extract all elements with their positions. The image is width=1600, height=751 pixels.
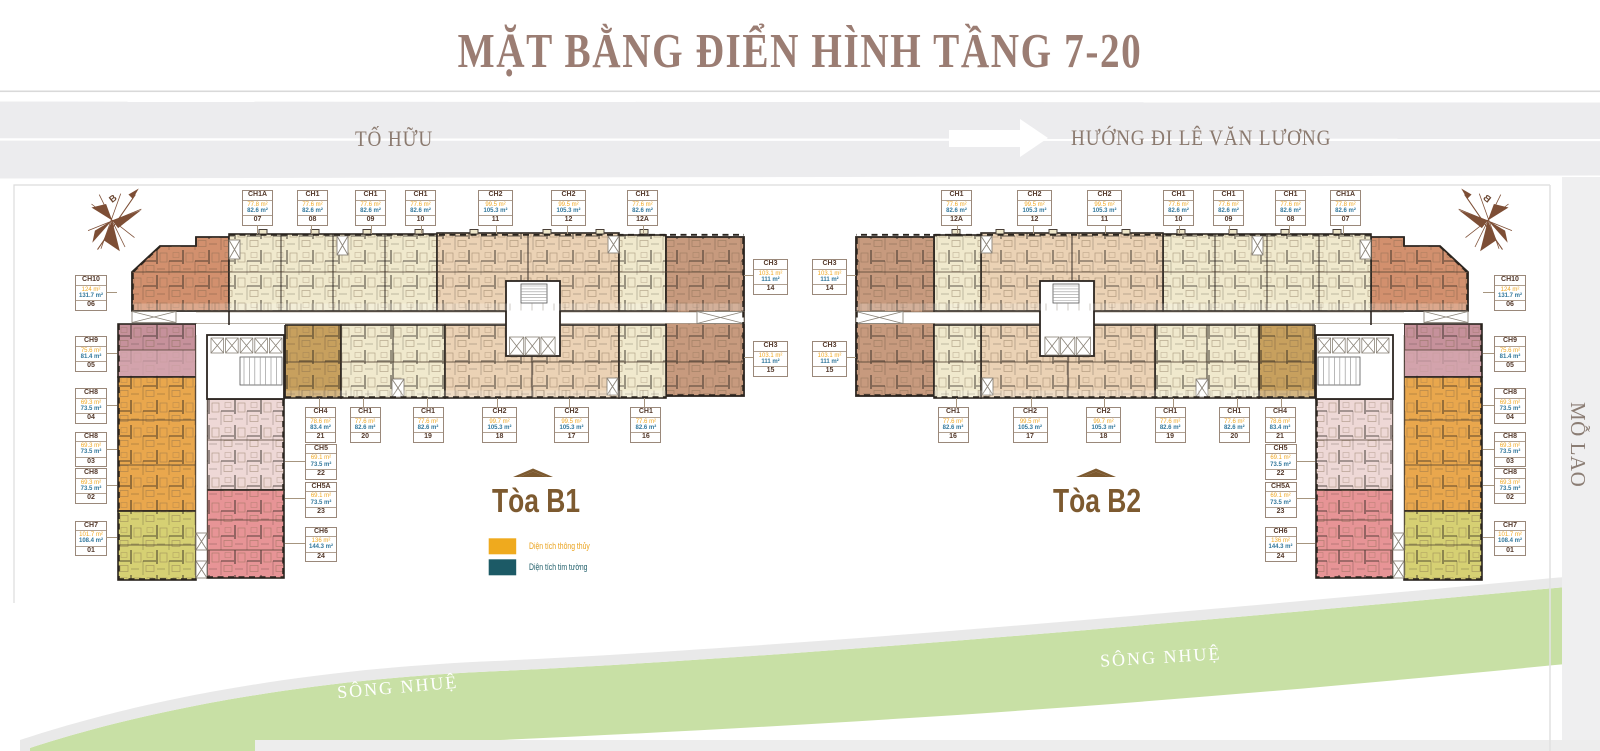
svg-text:B: B [107, 193, 119, 206]
